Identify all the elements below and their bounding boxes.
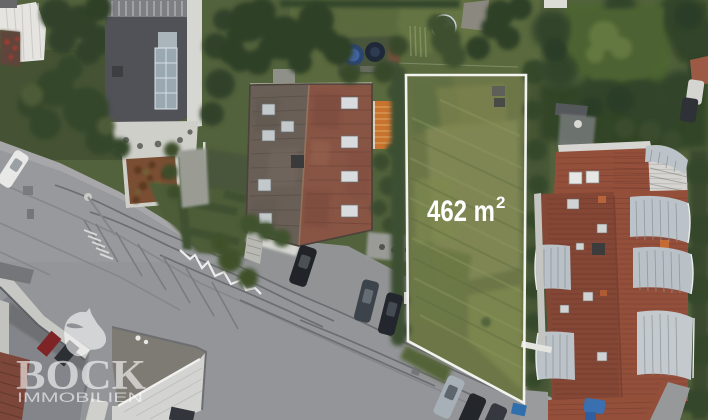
svg-text:IMMOBILIEN: IMMOBILIEN: [17, 390, 143, 405]
svg-text:462 m: 462 m: [427, 195, 495, 228]
svg-text:2: 2: [496, 193, 505, 212]
